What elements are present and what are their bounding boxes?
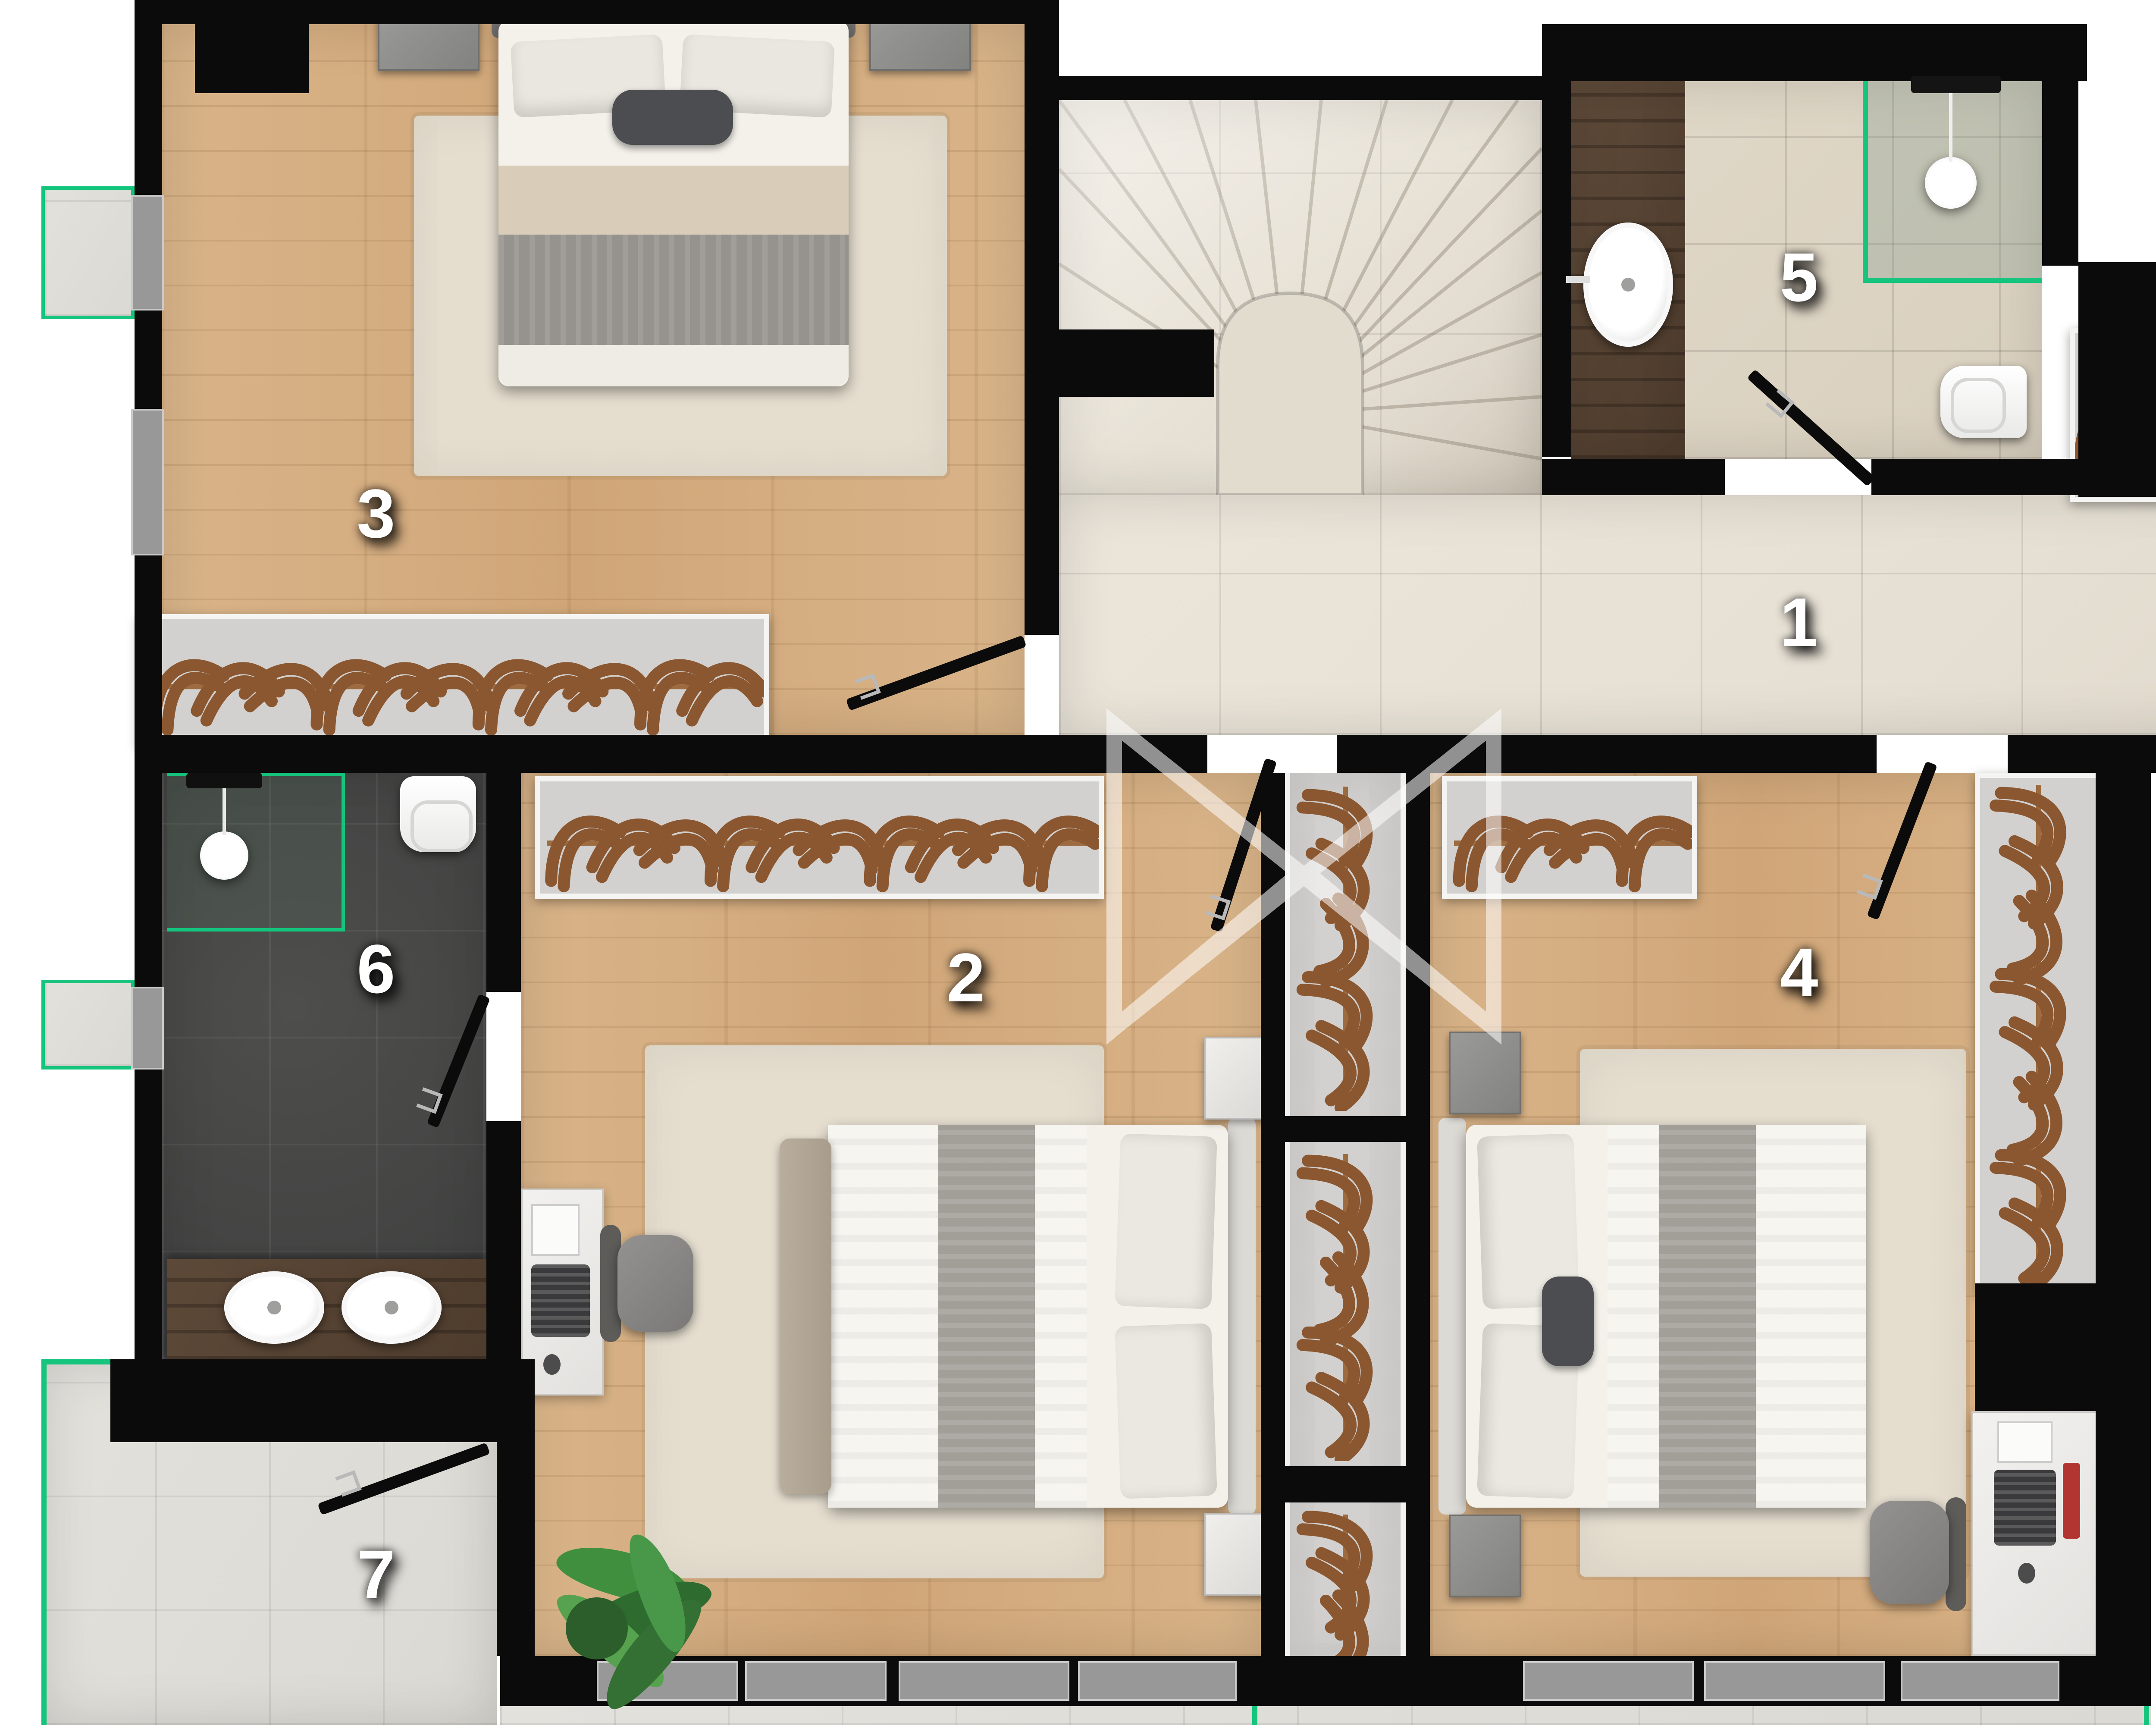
room-4-wardrobe-side <box>1975 773 2103 1294</box>
room-3-wardrobe <box>138 614 769 747</box>
room-label-5: 5 <box>1780 241 1818 318</box>
window <box>1704 1661 1885 1701</box>
closet-strip-section <box>1290 1508 1401 1680</box>
window <box>131 195 164 310</box>
wall <box>1542 459 1725 495</box>
watermark-right-triangle <box>1307 724 1494 1028</box>
wall <box>486 1121 521 1359</box>
bed-throw-blanket <box>938 1125 1035 1508</box>
wall <box>135 1064 162 1359</box>
desk-chair <box>1859 1483 1966 1625</box>
bed-throw-blanket <box>1659 1125 1756 1508</box>
wall <box>2096 773 2151 1706</box>
bed-accent-pillow <box>1542 1276 1594 1366</box>
laptop-icon <box>1994 1470 2056 1546</box>
bed-accent-pillow <box>612 90 733 145</box>
room-3-balcony <box>41 186 135 319</box>
shower-head-icon <box>200 831 248 880</box>
wall <box>1542 24 1571 457</box>
desk-chair <box>600 1214 697 1352</box>
shower-head-icon <box>1925 157 1977 209</box>
wall <box>135 310 162 409</box>
floor-plan-image: 1 2 3 4 5 6 7 Alt Kat <box>0 0 2156 1725</box>
closet-strip-section <box>1290 1147 1401 1461</box>
shower-valve-icon <box>1911 76 2001 93</box>
watermark-logo <box>1090 704 1518 1049</box>
window <box>1078 1661 1237 1701</box>
shower-valve-icon <box>186 773 262 788</box>
window <box>1901 1661 2059 1701</box>
wall <box>1542 24 2087 81</box>
bathroom-6-shower-area <box>167 773 345 931</box>
wall <box>2078 262 2156 497</box>
closet-divider <box>1261 1466 1430 1502</box>
sink-faucet <box>1566 276 1590 283</box>
laptop-icon <box>531 1264 590 1337</box>
bed-end-bench <box>780 1138 831 1494</box>
room-label-2: 2 <box>947 941 985 1019</box>
wall <box>1975 1283 2096 1411</box>
wall <box>1059 76 1552 100</box>
mouse-icon <box>543 1354 561 1375</box>
bathroom-6-toilet <box>400 776 476 852</box>
hallway-floor <box>1059 495 2156 735</box>
wall <box>1025 0 1059 635</box>
shower-hose <box>1949 86 1952 162</box>
nightstand <box>1449 1515 1521 1597</box>
window <box>745 1661 887 1701</box>
stair-newel-island <box>1218 293 1363 495</box>
closet-divider <box>1261 1116 1430 1142</box>
wall <box>135 0 162 195</box>
room-label-3: 3 <box>357 477 395 555</box>
window <box>899 1661 1069 1701</box>
stair-wall-stub <box>1025 329 1214 397</box>
room-2-wardrobe <box>535 776 1104 899</box>
room-4-bed <box>1438 1118 1866 1515</box>
room-3-bed <box>492 10 856 393</box>
wall <box>2008 735 2156 773</box>
wall <box>1871 459 2078 495</box>
terrace-railing <box>41 1359 110 1364</box>
bed-duvet-fold <box>498 166 849 238</box>
winder-staircase <box>1059 100 1542 495</box>
window <box>131 409 164 555</box>
room-label-4: 4 <box>1780 936 1818 1013</box>
balcony-glass-line <box>1252 1706 1257 1725</box>
wall <box>2042 24 2078 266</box>
sink-drain <box>385 1301 398 1314</box>
room-label-7: 7 <box>357 1538 395 1615</box>
notebook-icon <box>531 1204 580 1256</box>
terrace-railing <box>41 1359 47 1725</box>
window <box>1523 1661 1694 1701</box>
wall <box>135 735 1207 773</box>
wall <box>486 773 521 992</box>
bed-blanket <box>498 235 849 348</box>
wall <box>497 1442 535 1656</box>
wall <box>135 773 162 987</box>
sink-drain <box>267 1301 281 1314</box>
bed-headboard <box>1438 1118 1466 1515</box>
floor-plan: 1 2 3 4 5 6 7 Alt Kat <box>0 0 2156 1725</box>
notebook-icon <box>1997 1421 2053 1463</box>
chimney-shaft <box>195 0 309 93</box>
mouse-icon <box>2018 1563 2035 1584</box>
watermark-left-triangle <box>1114 724 1300 1028</box>
room-label-1: 1 <box>1780 586 1818 663</box>
bathroom-6-balcony <box>41 980 135 1069</box>
room-2-bed <box>828 1118 1256 1515</box>
room-label-6: 6 <box>357 932 395 1010</box>
window <box>131 987 164 1069</box>
bottom-balcony-strip <box>500 1706 2151 1725</box>
book-icon <box>2063 1463 2080 1539</box>
bed-pillow <box>1115 1323 1217 1499</box>
balcony-glass-line <box>2144 1706 2149 1725</box>
bathroom-5-toilet <box>1940 366 2027 438</box>
bed-headboard <box>1228 1118 1256 1515</box>
bed-foot <box>498 345 849 386</box>
bed-pillow <box>1115 1133 1217 1309</box>
sink-drain <box>1621 278 1635 292</box>
wall <box>110 1359 535 1442</box>
